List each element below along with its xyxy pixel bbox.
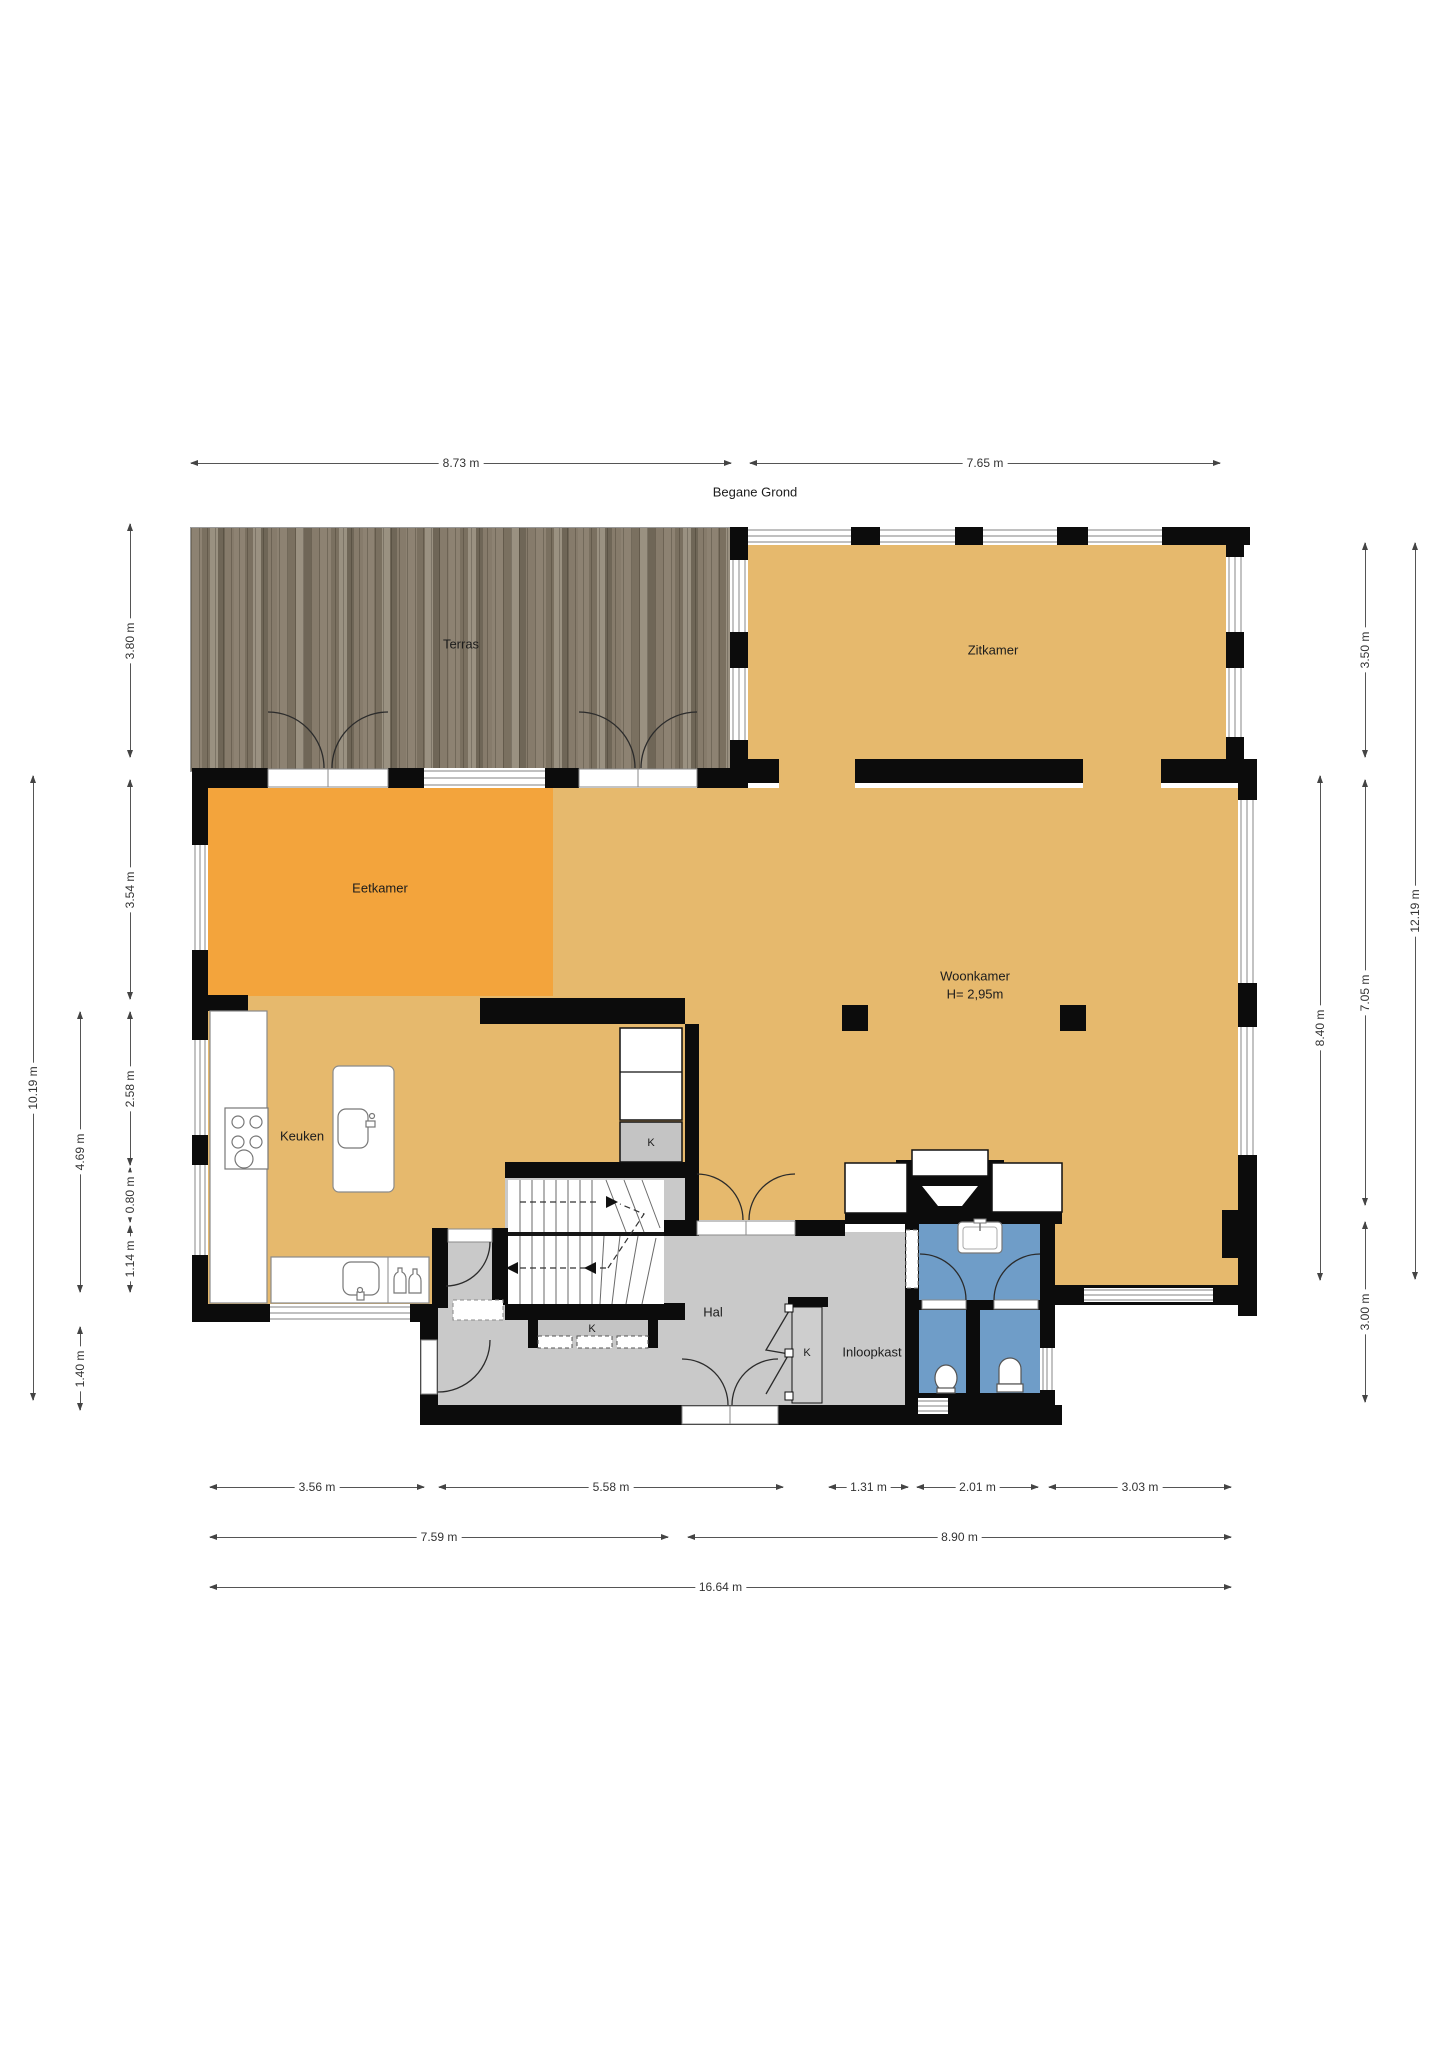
room-toilet-left: [918, 1310, 968, 1395]
room-keuken-south: [208, 1220, 432, 1308]
label-keuken: Keuken: [280, 1129, 324, 1144]
label-woonkamer: Woonkamer: [940, 969, 1010, 984]
label-terras: Terras: [443, 637, 479, 652]
room-opening-1: [779, 759, 855, 791]
label-hal: Hal: [703, 1305, 723, 1320]
label-closet-k3: K: [803, 1347, 810, 1359]
page-title: Begane Grond: [713, 485, 798, 500]
label-zitkamer: Zitkamer: [968, 643, 1019, 658]
room-woonkamer-south: [1055, 1220, 1238, 1290]
room-opening-2: [1083, 759, 1161, 791]
room-stairwell: [505, 1178, 685, 1305]
label-closet-k2: K: [588, 1323, 595, 1335]
label-closet-k1: K: [647, 1137, 654, 1149]
label-eetkamer: Eetkamer: [352, 881, 408, 896]
label-woonkamer-height: H= 2,95m: [947, 987, 1004, 1002]
room-toilet-right: [980, 1310, 1042, 1395]
label-inloopkast: Inloopkast: [842, 1345, 901, 1360]
room-washroom: [918, 1222, 1042, 1302]
floorplan-page: Begane Grond Terras Zitkamer Eetkamer Wo…: [0, 0, 1448, 2048]
